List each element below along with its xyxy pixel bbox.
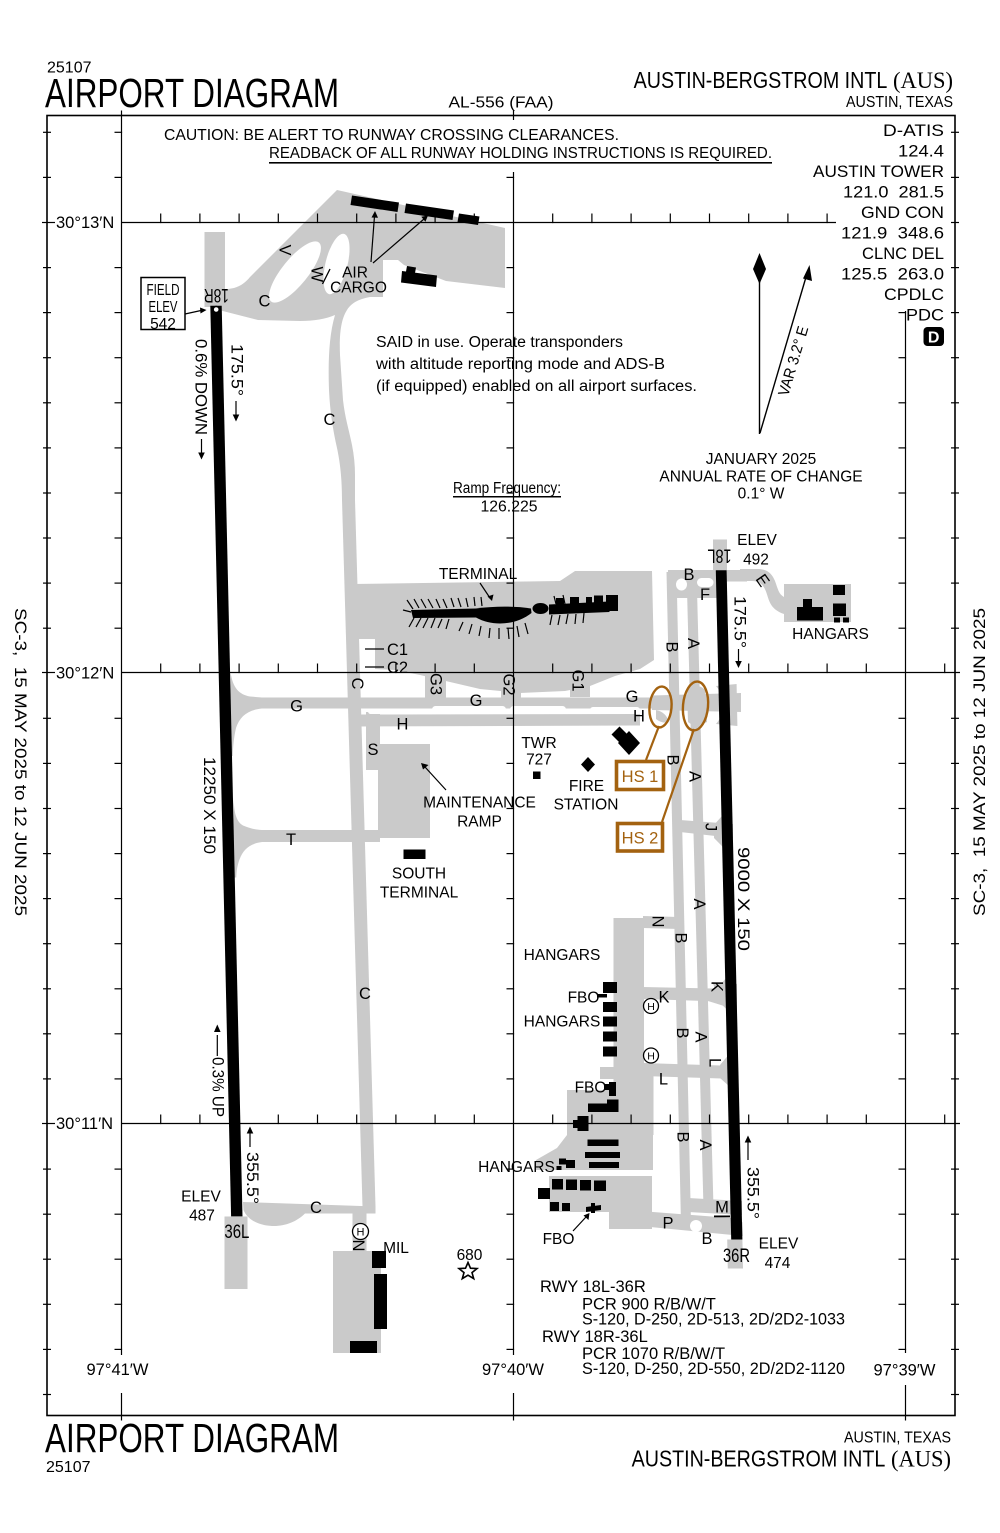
svg-text:P: P <box>662 1215 673 1233</box>
svg-text:TERMINAL: TERMINAL <box>439 566 518 583</box>
svg-text:G: G <box>626 688 639 706</box>
svg-text:V: V <box>276 245 294 256</box>
svg-text:36L: 36L <box>224 1222 249 1243</box>
svg-text:B: B <box>674 1132 692 1143</box>
svg-text:355.5°: 355.5° <box>243 1152 261 1204</box>
svg-text:SOUTH: SOUTH <box>392 866 446 883</box>
svg-text:S-120, D-250, 2D-550, 2D/2D2-1: S-120, D-250, 2D-550, 2D/2D2-1120 <box>582 1360 845 1378</box>
svg-text:HS 1: HS 1 <box>622 768 659 786</box>
svg-text:355.5°: 355.5° <box>744 1167 762 1219</box>
svg-text:HANGARS: HANGARS <box>478 1159 555 1176</box>
svg-text:with altitude reporting mode a: with altitude reporting mode and ADS-B <box>375 356 665 373</box>
svg-text:175.5°: 175.5° <box>731 596 749 648</box>
svg-text:AL-556 (FAA): AL-556 (FAA) <box>449 95 554 112</box>
svg-text:AUSTIN TOWER: AUSTIN TOWER <box>813 162 944 181</box>
svg-text:FBO: FBO <box>568 990 600 1007</box>
svg-text:RAMP: RAMP <box>457 814 502 831</box>
svg-text:RWY 18R-36L: RWY 18R-36L <box>542 1328 648 1346</box>
svg-text:L: L <box>706 1058 724 1067</box>
svg-text:B: B <box>664 755 682 766</box>
svg-text:JANUARY 2025: JANUARY 2025 <box>706 451 817 468</box>
svg-text:ELEV: ELEV <box>737 532 777 549</box>
svg-text:READBACK OF ALL RUNWAY HOLDING: READBACK OF ALL RUNWAY HOLDING INSTRUCTI… <box>269 145 772 162</box>
svg-text:C: C <box>310 1199 322 1217</box>
svg-text:A: A <box>690 899 708 910</box>
svg-text:97°41′W: 97°41′W <box>87 1361 149 1379</box>
svg-text:C: C <box>348 678 366 690</box>
svg-text:HANGARS: HANGARS <box>524 947 601 964</box>
svg-text:AUSTIN, TEXAS: AUSTIN, TEXAS <box>844 1430 951 1447</box>
svg-text:TWR: TWR <box>521 735 556 752</box>
svg-text:B: B <box>663 642 681 653</box>
svg-text:G: G <box>470 692 483 710</box>
svg-text:0.1° W: 0.1° W <box>738 486 785 503</box>
svg-text:474: 474 <box>765 1255 791 1272</box>
svg-text:A: A <box>686 771 704 782</box>
svg-text:N: N <box>349 1240 367 1252</box>
svg-text:C: C <box>259 293 271 311</box>
svg-text:A: A <box>696 1140 714 1151</box>
svg-text:H: H <box>633 708 645 726</box>
svg-text:L: L <box>659 1071 668 1089</box>
svg-text:542: 542 <box>150 316 176 333</box>
svg-text:AUSTIN, TEXAS: AUSTIN, TEXAS <box>846 94 953 111</box>
svg-text:MIL: MIL <box>383 1240 409 1257</box>
svg-text:126.225: 126.225 <box>481 499 538 516</box>
svg-text:A: A <box>692 1032 710 1043</box>
svg-text:SC-3, 15 MAY 2025 to 12 JUN 2: SC-3, 15 MAY 2025 to 12 JUN 2025 <box>11 608 30 916</box>
svg-text:RWY 18L-36R: RWY 18L-36R <box>540 1278 646 1296</box>
svg-text:CAUTION: BE ALERT TO RUNWAY CR: CAUTION: BE ALERT TO RUNWAY CROSSING CLE… <box>164 127 619 144</box>
svg-text:C: C <box>359 985 371 1003</box>
svg-text:AUSTIN-BERGSTROM INTL (AUS): AUSTIN-BERGSTROM INTL (AUS) <box>632 1446 951 1472</box>
svg-text:C1: C1 <box>387 641 408 659</box>
svg-text:18L: 18L <box>708 545 732 566</box>
svg-text:175.5°: 175.5° <box>228 344 246 396</box>
svg-text:B: B <box>673 1028 691 1039</box>
svg-text:9000 X 150: 9000 X 150 <box>734 847 752 951</box>
svg-text:97°39′W: 97°39′W <box>874 1362 936 1380</box>
svg-text:30°11′N: 30°11′N <box>56 1115 113 1133</box>
svg-text:H: H <box>647 1050 655 1062</box>
svg-text:Ramp Frequency:: Ramp Frequency: <box>453 480 561 497</box>
svg-text:AIRPORT DIAGRAM: AIRPORT DIAGRAM <box>45 1415 339 1461</box>
svg-text:125.5 263.0: 125.5 263.0 <box>841 265 944 284</box>
svg-text:M: M <box>715 1199 729 1217</box>
svg-text:MAINTENANCE: MAINTENANCE <box>423 795 536 812</box>
svg-text:CPDLC: CPDLC <box>884 285 944 304</box>
svg-text:ELEV: ELEV <box>181 1189 221 1206</box>
svg-text:AIRPORT DIAGRAM: AIRPORT DIAGRAM <box>45 70 339 116</box>
svg-text:ELEV: ELEV <box>759 1236 799 1253</box>
svg-text:121.9 348.6: 121.9 348.6 <box>841 224 944 243</box>
svg-text:C2: C2 <box>387 659 408 677</box>
svg-text:HANGARS: HANGARS <box>524 1014 601 1031</box>
svg-text:B: B <box>683 566 694 584</box>
svg-text:TERMINAL: TERMINAL <box>380 885 459 902</box>
svg-text:HS 2: HS 2 <box>622 830 659 848</box>
svg-text:F: F <box>700 586 710 604</box>
svg-text:B: B <box>701 1230 712 1248</box>
svg-text:G2: G2 <box>500 674 518 696</box>
svg-text:680: 680 <box>457 1247 483 1264</box>
svg-text:487: 487 <box>189 1208 215 1225</box>
svg-text:G3: G3 <box>427 673 445 695</box>
svg-text:SAID in use. Operate transpond: SAID in use. Operate transponders <box>376 334 623 351</box>
svg-text:H: H <box>397 716 409 734</box>
svg-text:97°40′W: 97°40′W <box>482 1361 544 1379</box>
svg-text:D: D <box>928 330 940 347</box>
svg-text:G: G <box>290 698 303 716</box>
svg-text:121.0 281.5: 121.0 281.5 <box>843 183 944 202</box>
svg-text:D-ATIS: D-ATIS <box>883 121 944 140</box>
svg-text:SC-3, 15 MAY 2025 to 12 JUN 2: SC-3, 15 MAY 2025 to 12 JUN 2025 <box>970 608 989 916</box>
svg-text:J: J <box>702 823 720 831</box>
svg-text:W: W <box>308 267 326 283</box>
svg-text:C: C <box>324 411 336 429</box>
svg-text:S: S <box>367 741 378 759</box>
svg-text:12250 X 150: 12250 X 150 <box>200 757 218 854</box>
svg-text:GND CON: GND CON <box>861 203 944 222</box>
svg-text:H: H <box>357 1227 365 1239</box>
svg-text:HANGARS: HANGARS <box>792 626 869 643</box>
svg-text:ELEV: ELEV <box>149 299 178 316</box>
svg-text:T: T <box>286 831 296 849</box>
svg-text:124.4: 124.4 <box>898 142 944 161</box>
svg-text:K: K <box>708 981 726 992</box>
svg-text:18R: 18R <box>204 284 229 305</box>
svg-text:30°13′N: 30°13′N <box>56 214 114 232</box>
svg-text:(if equipped) enabled on all a: (if equipped) enabled on all airport sur… <box>376 378 697 395</box>
svg-text:FBO: FBO <box>543 1231 575 1248</box>
svg-text:CARGO: CARGO <box>330 280 387 297</box>
svg-text:STATION: STATION <box>554 797 619 814</box>
svg-text:FBO: FBO <box>575 1080 607 1097</box>
svg-text:H: H <box>647 1001 655 1013</box>
svg-text:30°12′N: 30°12′N <box>56 665 114 683</box>
svg-text:CLNC DEL: CLNC DEL <box>862 244 944 263</box>
svg-text:FIELD: FIELD <box>147 282 180 299</box>
svg-text:AUSTIN-BERGSTROM INTL (AUS): AUSTIN-BERGSTROM INTL (AUS) <box>634 67 953 93</box>
svg-text:B: B <box>672 933 690 944</box>
svg-text:727: 727 <box>526 752 552 769</box>
svg-text:0.6% DOWN: 0.6% DOWN <box>192 339 210 435</box>
svg-text:S-120, D-250, 2D-513, 2D/2D2-1: S-120, D-250, 2D-513, 2D/2D2-1033 <box>582 1311 845 1329</box>
svg-text:ANNUAL RATE OF CHANGE: ANNUAL RATE OF CHANGE <box>659 469 862 486</box>
svg-text:N: N <box>649 916 667 928</box>
svg-text:492: 492 <box>743 552 769 569</box>
svg-text:G1: G1 <box>569 670 587 692</box>
svg-text:A: A <box>684 638 702 649</box>
svg-text:FIRE: FIRE <box>569 778 604 795</box>
svg-text:36R: 36R <box>723 1246 750 1267</box>
svg-text:PDC: PDC <box>906 306 944 325</box>
svg-text:0.3% UP: 0.3% UP <box>209 1057 227 1117</box>
svg-text:25107: 25107 <box>46 1459 91 1476</box>
svg-text:K: K <box>658 989 669 1007</box>
